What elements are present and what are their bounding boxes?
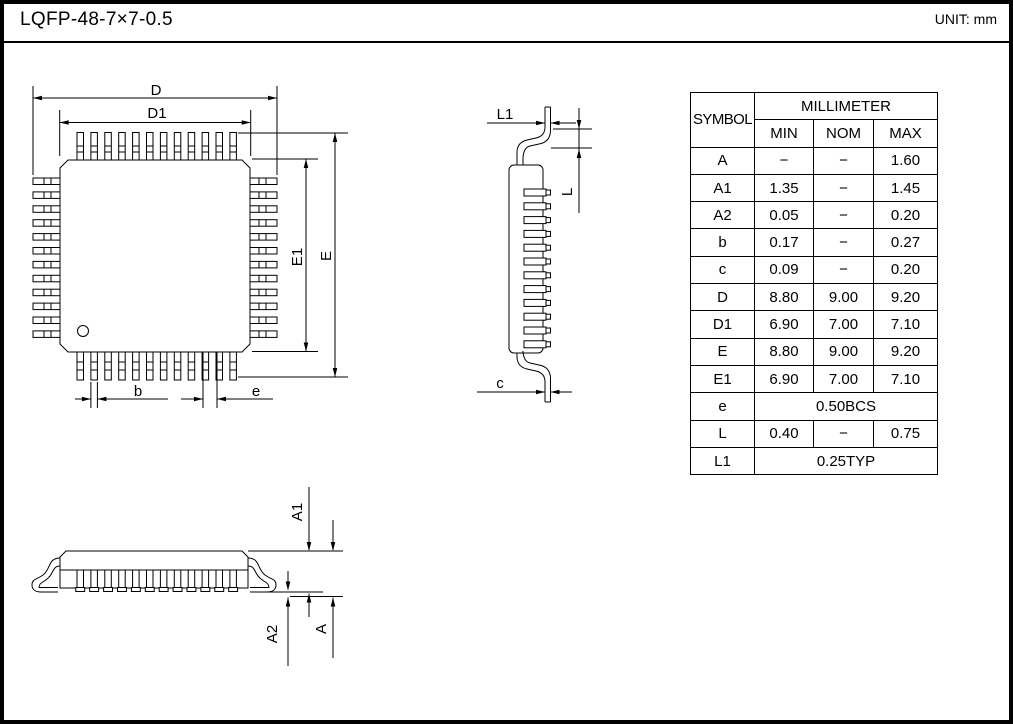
package-body-front-view xyxy=(60,551,248,588)
dim-label-b: b xyxy=(134,383,142,400)
pin xyxy=(119,570,126,589)
pin xyxy=(250,317,277,324)
pin xyxy=(145,588,154,592)
pin xyxy=(105,133,112,161)
pin xyxy=(250,220,277,227)
pin xyxy=(188,352,195,380)
dim-label-L: L xyxy=(559,188,576,196)
pin xyxy=(546,342,551,347)
pin xyxy=(546,314,551,319)
pin xyxy=(250,178,277,185)
pin xyxy=(215,588,224,592)
pin xyxy=(77,352,84,380)
pin xyxy=(202,570,209,589)
pin xyxy=(524,286,546,293)
col-header-nom: NOM xyxy=(814,120,874,147)
table-row: e0.50BCS xyxy=(691,393,938,420)
pin xyxy=(105,570,112,589)
pin xyxy=(91,570,98,589)
side-view: L1 L c xyxy=(477,106,592,402)
pin xyxy=(160,352,167,380)
pin xyxy=(250,275,277,282)
pin xyxy=(546,231,551,236)
pin xyxy=(202,133,209,161)
pin xyxy=(524,299,546,306)
col-header-max: MAX xyxy=(874,120,938,147)
pin xyxy=(524,258,546,265)
pin xyxy=(546,245,551,250)
dim-label-E1: E1 xyxy=(289,248,306,266)
header-divider xyxy=(0,41,1013,43)
unit-note: UNIT: mm xyxy=(935,11,997,27)
datasheet-page: LQFP-48-7×7-0.5 UNIT: mm D D1 xyxy=(0,0,1013,724)
pin xyxy=(33,206,60,213)
pin xyxy=(104,588,113,592)
top-view: D D1 E E1 xyxy=(33,82,348,408)
pin xyxy=(91,133,98,161)
pin xyxy=(250,261,277,268)
pin xyxy=(201,588,210,592)
pin xyxy=(159,588,168,592)
pin xyxy=(131,588,140,592)
table-row: D8.809.009.20 xyxy=(691,284,938,311)
pin xyxy=(174,570,181,589)
pin xyxy=(546,300,551,305)
pin xyxy=(524,341,546,348)
front-right-lead xyxy=(248,558,276,592)
pin xyxy=(250,331,277,338)
pin xyxy=(174,352,181,380)
dim-label-D: D xyxy=(151,82,162,99)
front-left-lead xyxy=(32,558,60,592)
package-body-top-view xyxy=(60,160,250,352)
pin xyxy=(216,352,223,380)
pin xyxy=(188,570,195,589)
pin xyxy=(546,204,551,209)
pin xyxy=(524,217,546,224)
pin xyxy=(133,352,140,380)
table-header-row: SYMBOL MILLIMETER xyxy=(691,93,938,120)
pin xyxy=(33,248,60,255)
pin xyxy=(524,203,546,210)
table-row: D16.907.007.10 xyxy=(691,311,938,338)
pin xyxy=(119,133,126,161)
pin xyxy=(133,133,140,161)
pin xyxy=(546,287,551,292)
pin xyxy=(33,303,60,310)
pin xyxy=(147,570,154,589)
pin xyxy=(77,570,84,589)
pin xyxy=(250,192,277,199)
table-row: A−−1.60 xyxy=(691,147,938,174)
side-view-leads xyxy=(524,189,551,348)
table-row: E16.907.007.10 xyxy=(691,365,938,392)
pin xyxy=(216,570,223,589)
pin xyxy=(33,220,60,227)
top-view-pins xyxy=(33,133,277,381)
pin xyxy=(147,352,154,380)
dim-label-A2: A2 xyxy=(264,625,281,643)
pin xyxy=(546,273,551,278)
dim-label-D1: D1 xyxy=(147,105,166,122)
pin xyxy=(77,133,84,161)
pin xyxy=(33,192,60,199)
pin xyxy=(524,272,546,279)
pin xyxy=(105,352,112,380)
pin xyxy=(174,133,181,161)
table-row: L0.40−0.75 xyxy=(691,420,938,447)
dimension-table-wrapper: SYMBOL MILLIMETER MIN NOM MAX A−−1.60 A1… xyxy=(690,92,938,475)
pin xyxy=(230,133,237,161)
pin xyxy=(33,261,60,268)
pin xyxy=(188,133,195,161)
pin xyxy=(524,313,546,320)
pin xyxy=(524,230,546,237)
pin xyxy=(250,234,277,241)
pin xyxy=(76,588,85,592)
pin xyxy=(118,588,127,592)
pin xyxy=(90,588,99,592)
pin xyxy=(546,190,551,195)
dim-label-L1: L1 xyxy=(497,106,514,123)
dim-label-E: E xyxy=(318,251,335,261)
pin xyxy=(33,331,60,338)
dimension-table: SYMBOL MILLIMETER MIN NOM MAX A−−1.60 A1… xyxy=(690,92,938,475)
package-body-side-view xyxy=(509,165,543,353)
pin xyxy=(524,327,546,334)
col-header-min: MIN xyxy=(755,120,814,147)
dim-label-c: c xyxy=(496,375,504,392)
pin xyxy=(33,275,60,282)
pin xyxy=(187,588,196,592)
pin xyxy=(33,234,60,241)
pin xyxy=(33,317,60,324)
table-row: b0.17−0.27 xyxy=(691,229,938,256)
pin xyxy=(133,570,140,589)
pin xyxy=(546,259,551,264)
pin1-indicator xyxy=(78,326,89,337)
front-view: A1 A2 A xyxy=(32,487,343,666)
pin xyxy=(33,178,60,185)
table-row: L10.25TYP xyxy=(691,447,938,474)
pin xyxy=(147,133,154,161)
pin xyxy=(160,133,167,161)
pin xyxy=(119,352,126,380)
pin xyxy=(524,244,546,251)
pin xyxy=(216,133,223,161)
pin xyxy=(250,303,277,310)
dim-label-e: e xyxy=(252,383,260,400)
table-row: A20.05−0.20 xyxy=(691,202,938,229)
symbol-header: SYMBOL xyxy=(691,93,755,148)
pin xyxy=(250,248,277,255)
pin xyxy=(230,570,237,589)
pin xyxy=(33,289,60,296)
pin xyxy=(546,218,551,223)
dim-label-A: A xyxy=(313,624,330,634)
pin xyxy=(250,206,277,213)
table-row: c0.09−0.20 xyxy=(691,256,938,283)
dim-label-A1: A1 xyxy=(289,503,306,521)
pin xyxy=(250,289,277,296)
page-title: LQFP-48-7×7-0.5 xyxy=(20,9,173,31)
pin xyxy=(546,328,551,333)
table-row: E8.809.009.20 xyxy=(691,338,938,365)
pin xyxy=(524,189,546,196)
pin xyxy=(202,352,209,380)
pin xyxy=(173,588,182,592)
pin xyxy=(160,570,167,589)
pin xyxy=(91,352,98,380)
pin xyxy=(230,352,237,380)
millimeter-header: MILLIMETER xyxy=(755,93,938,120)
table-row: A11.35−1.45 xyxy=(691,174,938,201)
pin xyxy=(229,588,238,592)
front-view-pins xyxy=(76,570,238,592)
